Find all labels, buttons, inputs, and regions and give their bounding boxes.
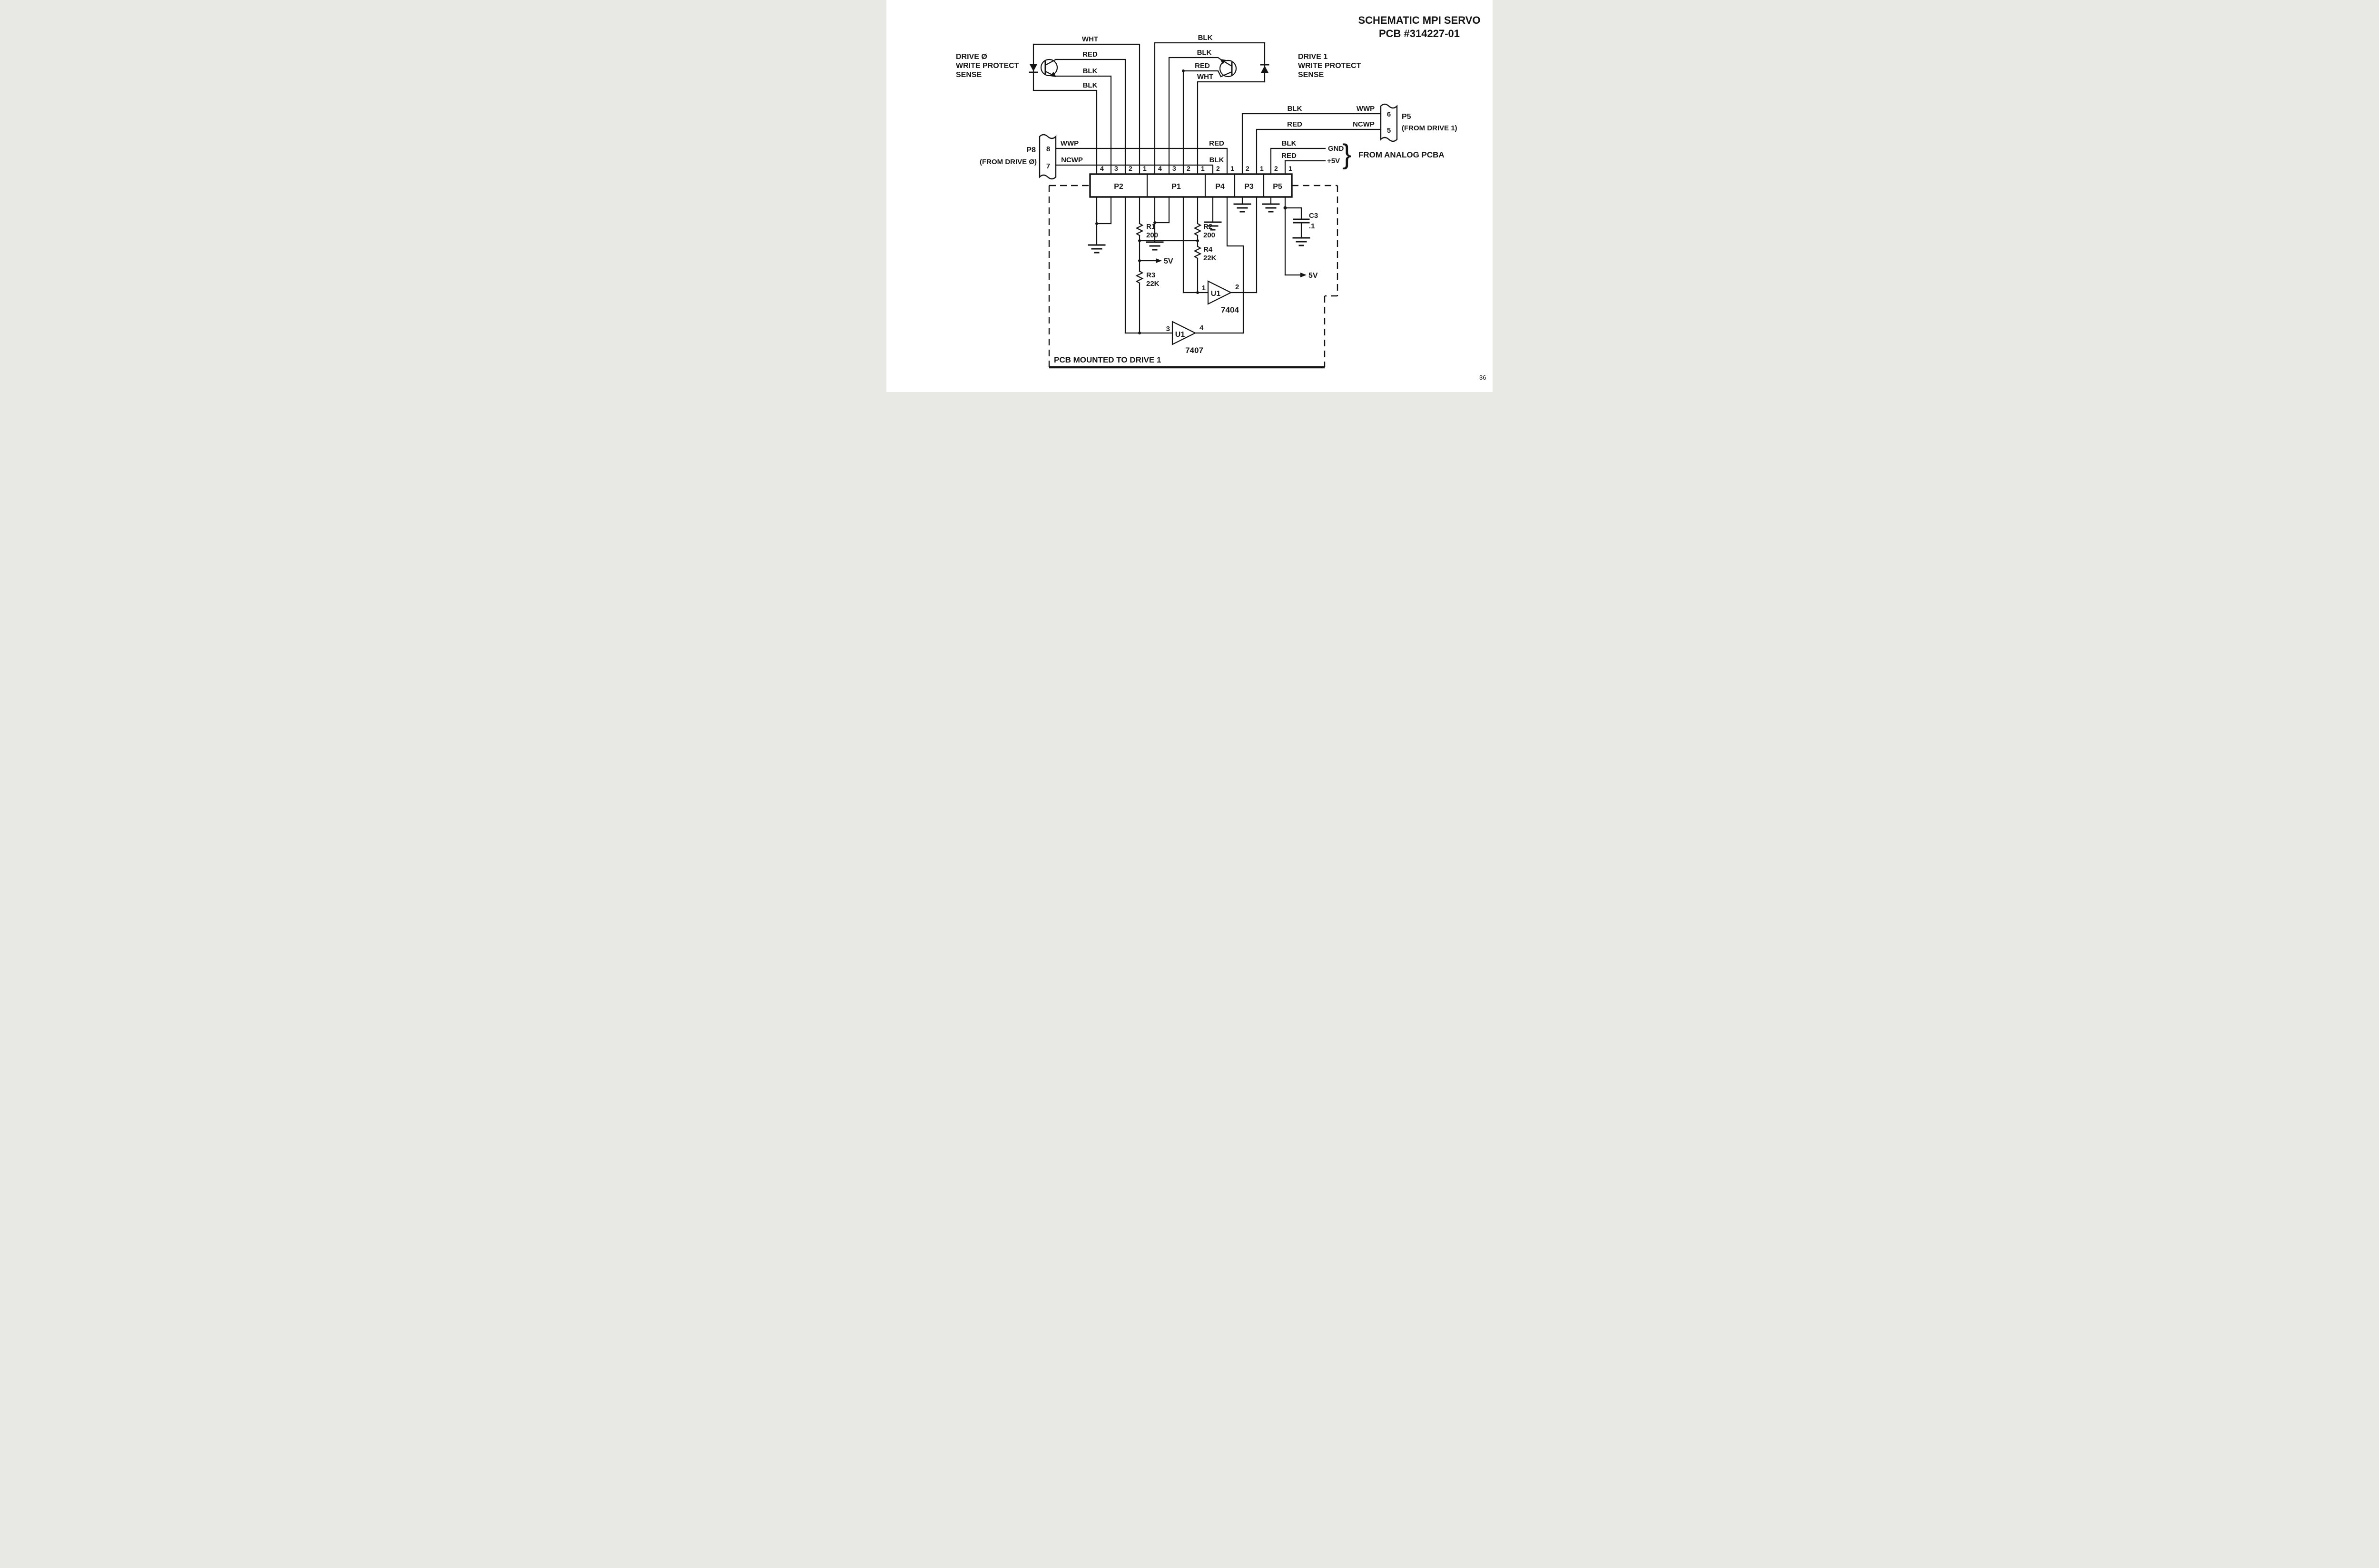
pin-number: 3	[1172, 165, 1176, 172]
pin-number: 5	[1387, 127, 1391, 135]
title-line2: PCB #314227-01	[1379, 28, 1460, 39]
connector-note: (FROM DRIVE Ø)	[980, 158, 1037, 166]
drive0-led-diode-icon	[1030, 44, 1037, 90]
p5-pin2-ground	[1263, 197, 1279, 212]
wire-d1-wht	[1198, 82, 1265, 174]
ref-label: R4	[1203, 245, 1213, 254]
power-label: 5V	[1308, 272, 1318, 280]
junction-dot	[1095, 222, 1098, 225]
connector-note: (FROM DRIVE 1)	[1402, 124, 1457, 132]
title-line1: SCHEMATIC MPI SERVO	[1358, 14, 1480, 26]
connector-body	[1040, 135, 1056, 179]
wire-label: BLK	[1209, 156, 1224, 164]
pin-number: 2	[1246, 165, 1249, 172]
svg-text:DRIVE 1: DRIVE 1	[1298, 53, 1327, 61]
junction-dot	[1196, 239, 1199, 242]
resistor-r1-icon	[1137, 224, 1142, 235]
svg-text:WRITE PROTECT: WRITE PROTECT	[1298, 62, 1361, 70]
wire-label: BLK	[1083, 81, 1098, 89]
power-5v-mid: 5V	[1138, 257, 1173, 265]
junction-dot	[1196, 291, 1199, 294]
wire	[1285, 208, 1301, 219]
drive1-label: DRIVE 1 WRITE PROTECT SENSE	[1298, 53, 1361, 79]
junction-dot	[1138, 332, 1141, 334]
drive1-led-diode-icon	[1261, 43, 1268, 82]
schematic-page: SCHEMATIC MPI SERVO PCB #314227-01 36 DR…	[886, 0, 1493, 392]
wire	[1155, 197, 1169, 223]
gate-ref: U1	[1175, 331, 1185, 339]
value-label: 200	[1203, 231, 1215, 239]
strip-section-label: P5	[1273, 183, 1282, 191]
p3-pin2-ground	[1234, 197, 1250, 212]
value-label: 200	[1146, 231, 1158, 239]
analog-source-label: FROM ANALOG PCBA	[1358, 150, 1445, 159]
gate-ref: U1	[1211, 290, 1221, 298]
wire	[1097, 197, 1111, 224]
value-label: 22K	[1146, 280, 1160, 288]
ref-label: R2	[1203, 223, 1212, 231]
drive1-phototransistor-icon	[1220, 59, 1236, 77]
schematic-canvas: SCHEMATIC MPI SERVO PCB #314227-01 36 DR…	[886, 0, 1493, 392]
wire-label: RED	[1082, 50, 1098, 59]
gate-pin: 3	[1166, 325, 1170, 333]
diode-arrow	[1030, 64, 1037, 71]
ground-icon	[1089, 245, 1105, 253]
drive0-phototransistor-icon	[1041, 59, 1057, 77]
pcb-boundary: PCB MOUNTED TO DRIVE 1	[1049, 186, 1337, 367]
gate-part: 7404	[1221, 305, 1239, 314]
strip-section-label: P2	[1114, 183, 1123, 191]
pin-number: 2	[1216, 165, 1220, 172]
wire-label: RED	[1195, 62, 1210, 70]
page-number: 36	[1479, 374, 1486, 381]
wire-label: BLK	[1198, 34, 1213, 42]
capacitor-c3-icon: C3 .1	[1285, 208, 1318, 245]
wire-label: BLK	[1288, 105, 1302, 113]
diode-arrow	[1261, 66, 1268, 73]
inverter-gate-7404-icon: 1 U1 2 7404	[1202, 281, 1239, 314]
resistor-r4-icon	[1195, 246, 1200, 258]
pin-number: 6	[1387, 110, 1391, 118]
wire-label: WHT	[1082, 35, 1098, 43]
pin-number: 1	[1288, 165, 1292, 172]
svg-text:WRITE PROTECT: WRITE PROTECT	[956, 62, 1019, 70]
wire-label: BLK	[1197, 49, 1212, 57]
pin-number: 1	[1260, 165, 1264, 172]
connector-name: P8	[1026, 146, 1036, 154]
value-label: .1	[1309, 222, 1315, 230]
boundary-note: PCB MOUNTED TO DRIVE 1	[1054, 355, 1161, 364]
signal-label: WWP	[1357, 105, 1375, 113]
pin-number: 7	[1046, 162, 1050, 170]
resistor-r3-icon	[1137, 271, 1142, 283]
resistor-r2-icon	[1195, 224, 1200, 235]
gate-pin: 2	[1235, 283, 1239, 291]
p2-ground	[1089, 197, 1111, 253]
gate-pin: 1	[1202, 284, 1206, 292]
pin-number: 2	[1129, 165, 1132, 172]
svg-text:DRIVE Ø: DRIVE Ø	[956, 53, 987, 61]
ground-icon	[1263, 204, 1279, 212]
strip-section-label: P3	[1244, 183, 1254, 191]
signal-label: NCWP	[1353, 120, 1375, 128]
connector-body	[1381, 104, 1397, 141]
wire-label: RED	[1209, 139, 1224, 147]
junction-dot	[1138, 239, 1141, 242]
pin-number: 2	[1274, 165, 1278, 172]
ref-label: R1	[1146, 223, 1155, 231]
svg-text:SENSE: SENSE	[956, 71, 982, 79]
pin-number: 1	[1201, 165, 1205, 172]
wire-label: RED	[1281, 152, 1297, 160]
value-label: 22K	[1203, 254, 1217, 262]
connector-p8: 8 7 P8 (FROM DRIVE Ø)	[980, 135, 1056, 179]
ref-label: C3	[1309, 212, 1318, 220]
wire-label: BLK	[1282, 139, 1297, 147]
connector-strip: P2 P1 P4 P3 P5 4 3 2 1 4 3 2 1 2 1 2 1 2…	[1090, 165, 1292, 197]
gate-pin: 4	[1199, 324, 1204, 332]
gate-part: 7407	[1185, 346, 1203, 355]
rail-label: GND	[1328, 145, 1344, 153]
strip-section-label: P4	[1215, 183, 1225, 191]
buffer-gate-7407-icon: 3 U1 4 7407	[1166, 322, 1204, 355]
power-label: 5V	[1164, 257, 1173, 265]
signal-label: WWP	[1061, 139, 1079, 147]
drive0-label: DRIVE Ø WRITE PROTECT SENSE	[956, 53, 1019, 79]
ground-icon	[1293, 238, 1309, 245]
pin-number: 1	[1143, 165, 1147, 172]
rail-label: +5V	[1327, 157, 1340, 165]
pin-number: 4	[1100, 165, 1104, 172]
ref-label: R3	[1146, 271, 1155, 279]
connector-name: P5	[1402, 113, 1411, 121]
pin-number: 8	[1046, 145, 1050, 153]
pin-number: 4	[1158, 165, 1162, 172]
brace-icon: }	[1342, 139, 1351, 170]
arrow-icon	[1156, 258, 1162, 263]
ground-icon	[1234, 204, 1250, 212]
pin-number: 3	[1114, 165, 1118, 172]
signal-label: NCWP	[1061, 156, 1083, 164]
junction-dot	[1182, 69, 1185, 72]
ground-icon	[1147, 242, 1163, 250]
strip-section-label: P1	[1171, 183, 1181, 191]
pin-number: 1	[1230, 165, 1234, 172]
svg-text:SENSE: SENSE	[1298, 71, 1324, 79]
connector-p5-drive1: 6 5 P5 (FROM DRIVE 1)	[1381, 104, 1457, 141]
wire-label: BLK	[1083, 67, 1098, 75]
pin-number: 2	[1187, 165, 1190, 172]
arrow-icon	[1300, 273, 1307, 277]
wire-label: WHT	[1197, 73, 1213, 81]
wire-label: RED	[1287, 120, 1302, 128]
power-5v-right: 5V	[1285, 272, 1318, 280]
